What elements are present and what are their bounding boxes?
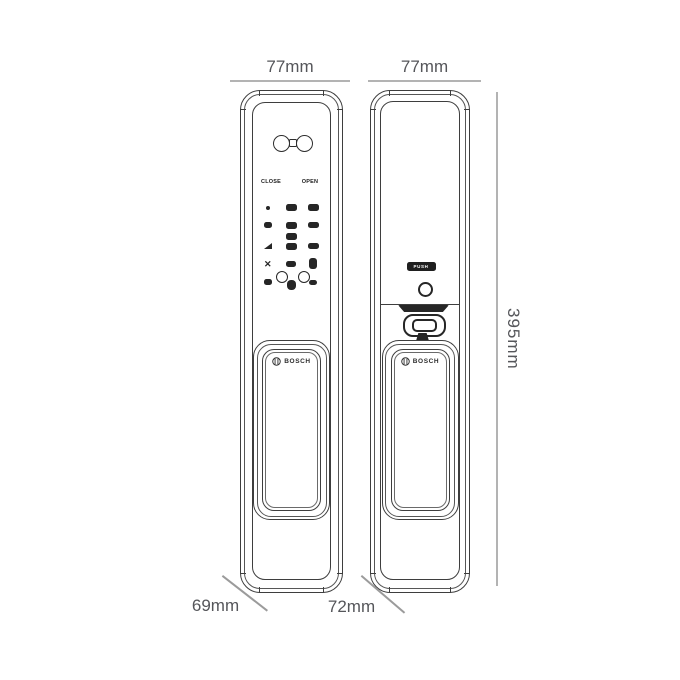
- open-label: OPEN: [293, 179, 327, 185]
- corner-tick: [450, 587, 451, 593]
- thumbturn-knob-icon: [412, 319, 437, 332]
- sensor-right-icon: [296, 135, 313, 152]
- corner-tick: [323, 90, 324, 96]
- dim-height-label: 395mm: [503, 308, 523, 370]
- push-button-label: PUSH: [407, 262, 436, 271]
- corner-tick: [337, 573, 343, 574]
- brand-label: BOSCH: [284, 358, 310, 365]
- keypad-ring-icon: [276, 271, 288, 283]
- push-button-icon: [418, 282, 433, 297]
- dim-back-width-label: 77mm: [368, 57, 481, 77]
- front-panel: CLOSE OPEN ✕: [240, 90, 343, 593]
- bosch-armature-icon: [272, 357, 281, 366]
- corner-tick: [259, 587, 260, 593]
- dim-height-label-wrap: 395mm: [500, 92, 526, 586]
- close-label: CLOSE: [254, 179, 288, 185]
- keypad-key-icon: [309, 280, 317, 285]
- corner-tick: [450, 90, 451, 96]
- corner-tick: [259, 90, 260, 96]
- dim-front-depth-label: 69mm: [188, 596, 243, 616]
- dim-back-width-line: [368, 80, 481, 82]
- dim-height-line: [496, 92, 498, 586]
- back-handle: BOSCH: [382, 340, 459, 520]
- keypad-key-icon: [308, 204, 319, 211]
- corner-tick: [389, 90, 390, 96]
- keypad-key-icon: [308, 222, 319, 228]
- keypad-key-icon: [286, 261, 296, 267]
- keypad-key-icon: [286, 233, 297, 240]
- dim-back-depth-label: 72mm: [324, 597, 379, 617]
- keypad-key-icon: [264, 279, 272, 285]
- keypad-key-icon: [286, 204, 297, 211]
- corner-tick: [240, 109, 246, 110]
- corner-tick: [337, 109, 343, 110]
- front-handle: BOSCH: [253, 340, 330, 520]
- dim-front-width-label: 77mm: [230, 57, 350, 77]
- handle-recess: [265, 352, 318, 508]
- corner-tick: [240, 573, 246, 574]
- bosch-logo: BOSCH: [253, 357, 330, 366]
- bosch-armature-icon: [401, 357, 410, 366]
- corner-tick: [389, 587, 390, 593]
- keypad-key-icon: [286, 243, 297, 250]
- brand-label: BOSCH: [413, 358, 439, 365]
- handle-recess: [394, 352, 447, 508]
- corner-tick: [370, 573, 376, 574]
- door-lock-dimension-diagram: 77mm 77mm 395mm CLOSE OPEN: [0, 0, 680, 680]
- corner-tick: [323, 587, 324, 593]
- back-panel: PUSH BOSCH: [370, 90, 470, 593]
- sensor-left-icon: [273, 135, 290, 152]
- keypad-key-icon: [287, 280, 296, 290]
- bosch-logo: BOSCH: [382, 357, 459, 366]
- keypad-key-icon: [264, 222, 272, 228]
- keypad-key-icon: [308, 243, 319, 249]
- corner-tick: [464, 573, 470, 574]
- corner-tick: [464, 109, 470, 110]
- dim-front-width-line: [230, 80, 350, 82]
- keypad-x-icon: ✕: [264, 260, 272, 268]
- corner-tick: [370, 109, 376, 110]
- keypad-key-icon: [286, 222, 297, 229]
- keypad-key-icon: [309, 258, 317, 269]
- push-label: PUSH: [414, 264, 429, 269]
- keypad-key-icon: [266, 206, 270, 210]
- battery-latch-icon: [398, 305, 449, 312]
